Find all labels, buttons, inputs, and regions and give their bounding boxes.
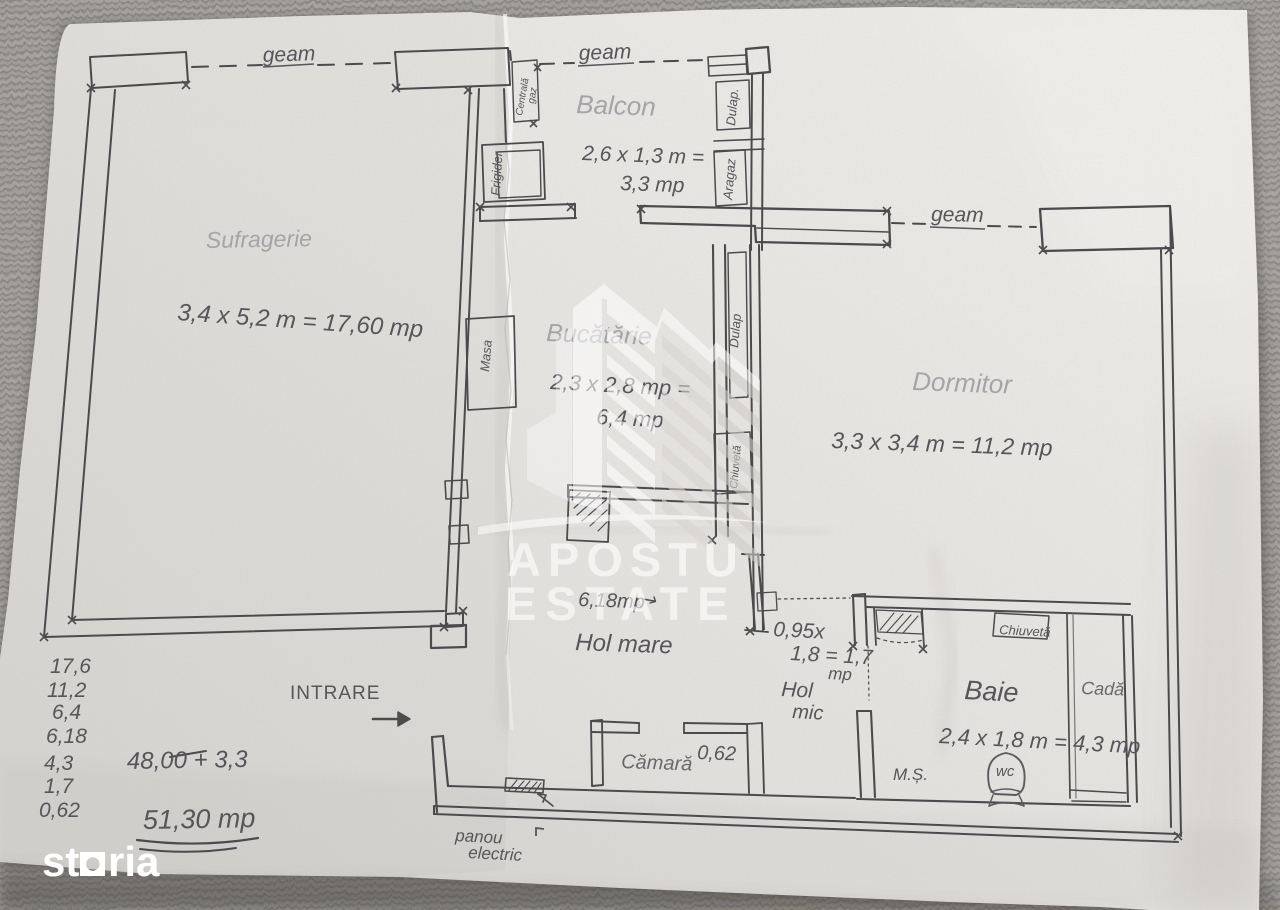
svg-text:mp: mp	[828, 664, 853, 684]
svg-text:Baie: Baie	[964, 675, 1020, 708]
svg-text:wc: wc	[996, 763, 1015, 780]
svg-text:Sufragerie: Sufragerie	[206, 225, 313, 253]
svg-text:Cămară: Cămară	[621, 751, 693, 775]
svg-text:Masa: Masa	[477, 339, 495, 372]
svg-text:51,30 mp: 51,30 mp	[143, 803, 256, 835]
svg-text:48,00 + 3,3: 48,00 + 3,3	[127, 746, 249, 775]
svg-text:ria: ria	[108, 838, 160, 885]
svg-text:6,4: 6,4	[52, 701, 81, 724]
svg-text:Cadă: Cadă	[1081, 678, 1125, 699]
svg-text:0,95x: 0,95x	[773, 618, 827, 644]
svg-text:INTRARE: INTRARE	[290, 683, 380, 704]
svg-text:geam: geam	[262, 42, 315, 67]
svg-text:Hol mare: Hol mare	[575, 629, 673, 659]
svg-text:Balcon: Balcon	[576, 89, 656, 122]
svg-text:0,62: 0,62	[697, 742, 737, 765]
svg-text:0,62: 0,62	[39, 799, 80, 822]
svg-text:geam: geam	[931, 203, 984, 227]
svg-text:6,18: 6,18	[46, 725, 87, 748]
svg-text:3,3 mp: 3,3 mp	[620, 172, 685, 197]
svg-text:Dormitor: Dormitor	[912, 366, 1014, 400]
svg-text:M.Ș.: M.Ș.	[893, 765, 928, 784]
svg-text:geam: geam	[578, 40, 631, 65]
svg-text:Hol: Hol	[781, 678, 815, 703]
svg-text:1,7: 1,7	[44, 775, 75, 798]
svg-text:11,2: 11,2	[47, 679, 87, 702]
svg-text:17,6: 17,6	[50, 655, 91, 678]
svg-text:ESTATE: ESTATE	[505, 577, 737, 630]
svg-text:Dulap: Dulap	[726, 313, 744, 348]
svg-text:st: st	[42, 838, 79, 885]
svg-text:Chiuvetă: Chiuvetă	[999, 622, 1051, 640]
svg-text:mic: mic	[792, 701, 824, 725]
svg-text:electric: electric	[468, 843, 523, 865]
svg-text:4,3: 4,3	[44, 752, 74, 775]
svg-text:Frigider: Frigider	[488, 151, 505, 196]
svg-text:2,6 x 1,3 m =: 2,6 x 1,3 m =	[581, 142, 705, 169]
